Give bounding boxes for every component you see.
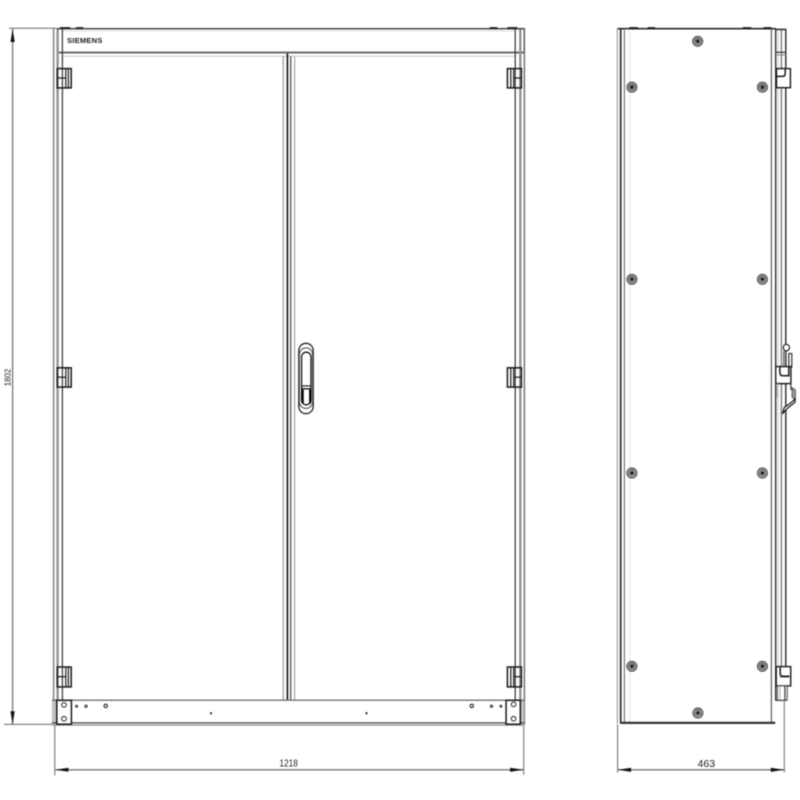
svg-text:463: 463 [698, 759, 716, 770]
svg-text:1802: 1802 [2, 369, 12, 387]
svg-text:SIEMENS: SIEMENS [67, 36, 103, 45]
svg-text:1218: 1218 [279, 759, 298, 770]
